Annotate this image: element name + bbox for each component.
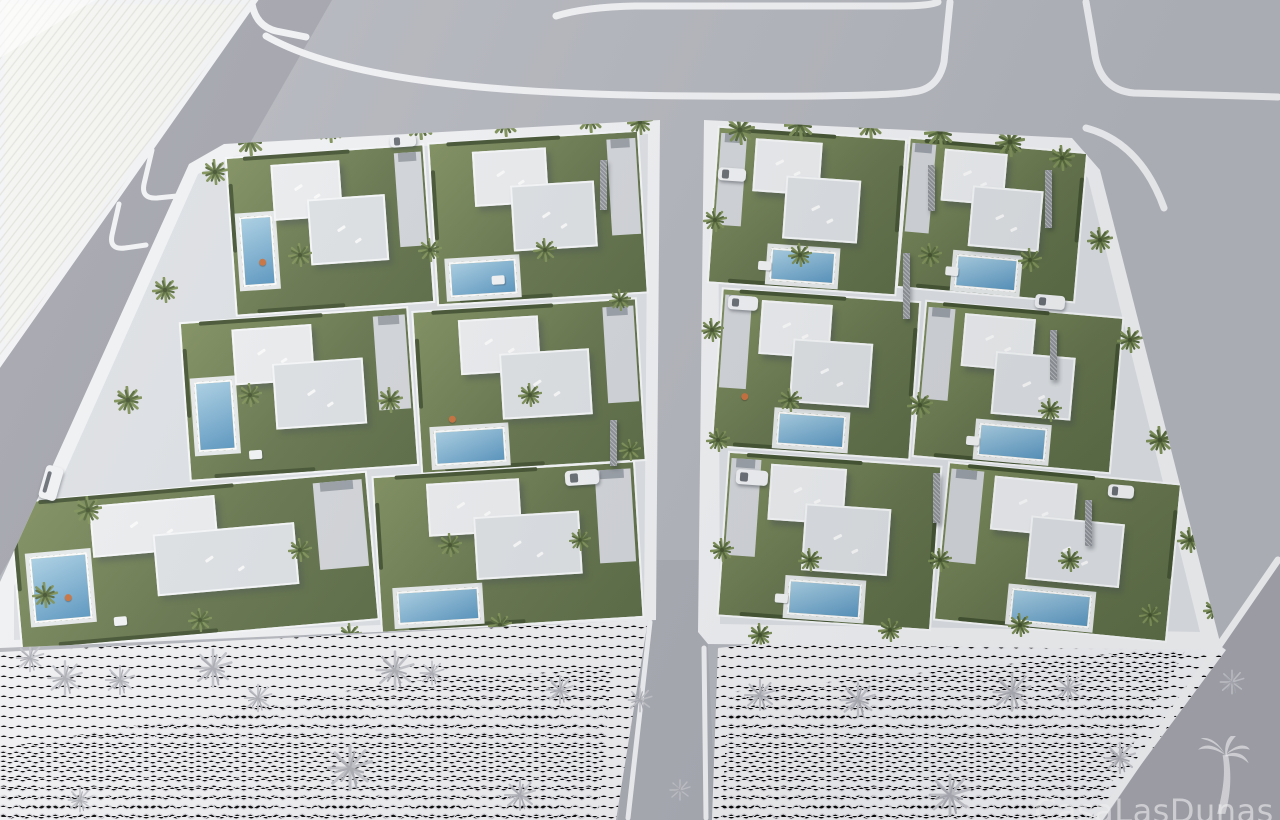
road-curb: [266, 2, 950, 96]
palm-tree: [1118, 328, 1142, 352]
palm-tree: [33, 583, 57, 607]
palm-tree: [519, 384, 541, 406]
aerial-render-scene: CasaLasDunas: [0, 0, 1280, 820]
palm-tree: [1039, 399, 1061, 421]
palm-tree: [570, 530, 590, 550]
palm-tree: [189, 609, 211, 631]
palm-tree: [1088, 228, 1112, 252]
palm-tree: [879, 619, 901, 641]
palm-tree: [1009, 614, 1031, 636]
palm-tree: [704, 209, 726, 231]
palm-tree: [534, 239, 556, 261]
palm-tree: [239, 384, 261, 406]
palm-tree: [1019, 249, 1041, 271]
palm-tree: [779, 389, 801, 411]
road-curb: [556, 2, 938, 16]
palm-tree: [289, 244, 311, 266]
palm-tree: [115, 387, 141, 413]
palm-tree: [908, 393, 932, 417]
palm-tree: [75, 497, 101, 523]
palm-tree: [153, 278, 177, 302]
palm-tree: [289, 539, 311, 561]
palm-tree: [1059, 549, 1081, 571]
palm-tree: [707, 429, 729, 451]
palm-tree-icon: [1196, 736, 1252, 818]
palm-tree: [378, 388, 402, 412]
road-curb: [1086, 2, 1278, 97]
palm-tree: [610, 290, 630, 310]
palm-tree: [1140, 605, 1160, 625]
palm-tree: [929, 549, 951, 571]
palm-tree: [919, 244, 941, 266]
palm-tree: [620, 440, 640, 460]
palm-tree: [711, 539, 733, 561]
palm-tree: [701, 319, 723, 341]
palm-tree: [203, 160, 227, 184]
palm-tree: [749, 624, 771, 646]
palm-tree: [789, 244, 811, 266]
palm-tree: [419, 239, 441, 261]
palm-tree: [799, 549, 821, 571]
road-curb: [704, 648, 706, 818]
palm-tree: [1050, 146, 1074, 170]
car-windshield: [42, 471, 52, 493]
palm-tree: [439, 534, 461, 556]
